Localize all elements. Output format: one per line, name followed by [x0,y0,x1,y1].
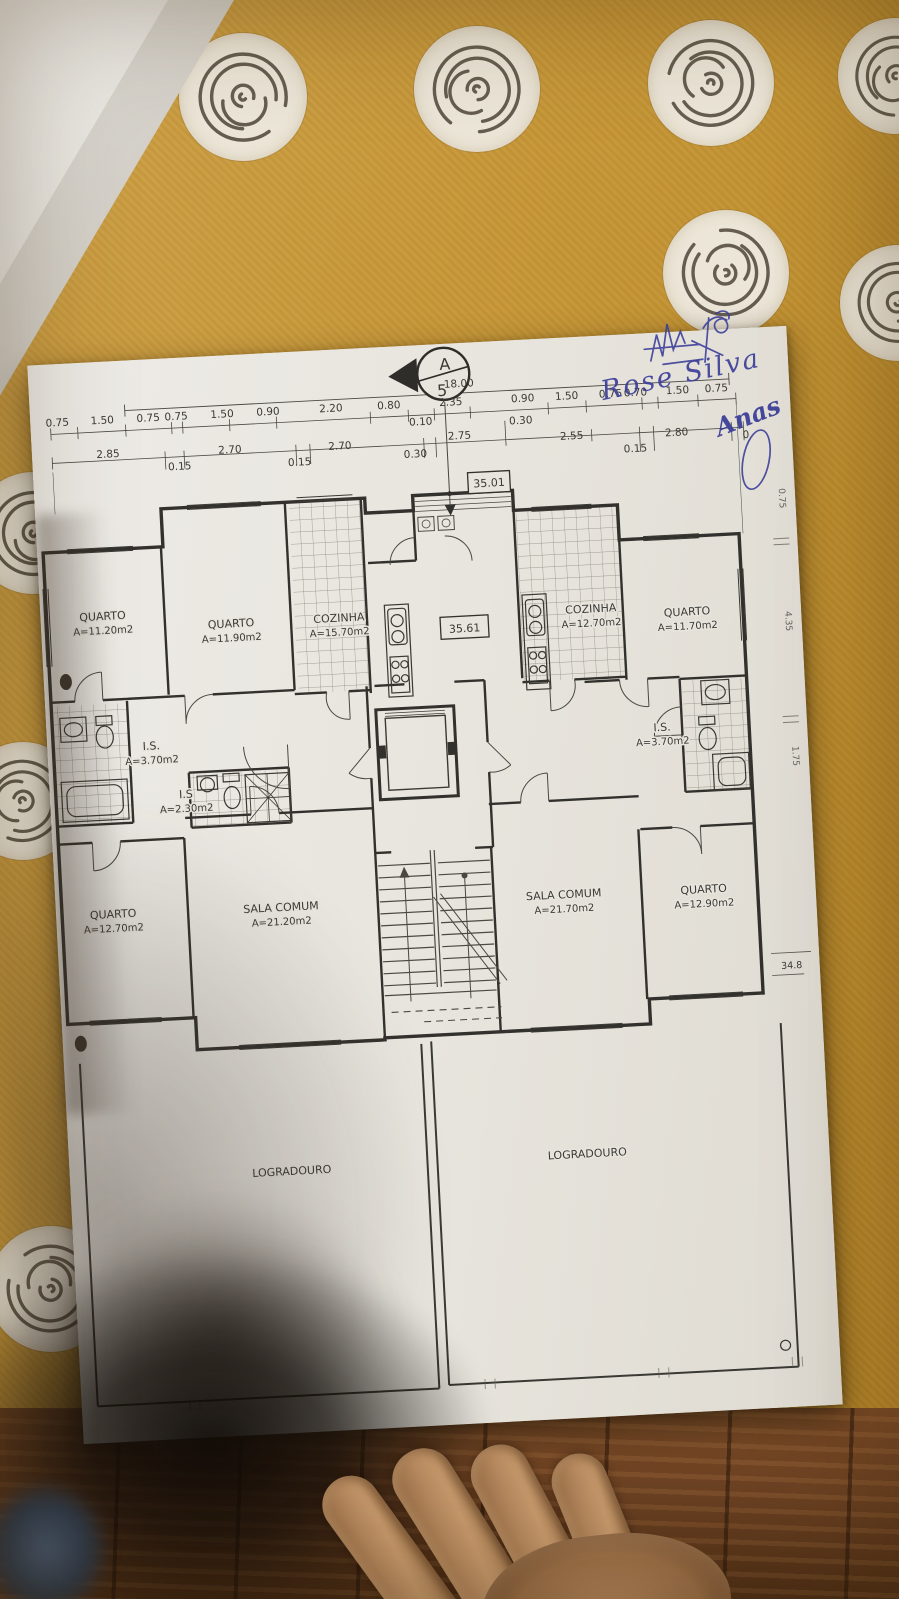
side-dimension-labels: 0.754.351.75 [776,488,801,766]
tablecloth-spiral-motif [840,245,899,361]
room-name: COZINHA [313,610,365,626]
dimension-label: 2.55 [560,430,584,443]
dimension-label: 0.75 [164,410,188,423]
dimension-label: 2.20 [319,402,343,415]
svg-text:35.01: 35.01 [473,476,505,491]
dimension-label: 2.35 [439,396,463,409]
room-name: QUARTO [208,616,255,631]
section-letter: A [439,354,451,374]
room-area: A=3.70m2 [636,735,690,749]
dimension-label: 0.75 [45,417,69,430]
tablecloth-spiral-motif [414,26,540,152]
blue-fabric-corner [0,1480,110,1599]
dimension-label: 2.75 [448,429,472,442]
hand [352,1420,752,1599]
section-marker: A 5 [387,347,471,403]
room-name: QUARTO [680,882,727,897]
side-dimension-label: 1.75 [789,746,800,767]
dimension-label: 0.10 [409,416,433,429]
photo-scene: A 5 18.00 35.01 35.61 34.8 [0,0,899,1599]
dimension-label: 0.30 [403,448,427,461]
room-name: I.S. [142,739,160,753]
side-dimension-label: 4.35 [782,611,793,632]
signature-handwriting: Rose Silva Anas [591,307,821,518]
room-name: SALA COMUM [526,886,602,903]
dimension-label: 1.50 [555,390,579,403]
yard-drain-mark [780,1340,791,1351]
boxed-label-3561: 35.61 [440,615,489,639]
signature-loop [726,420,790,503]
room-area: A=12.90m2 [674,897,734,911]
room-name: LOGRADOURO [547,1145,627,1162]
room-name: I.S. [653,720,671,734]
boxed-label-3501: 35.01 [467,471,510,494]
room-area: A=21.70m2 [534,903,594,917]
tablecloth-spiral-motif [648,20,774,146]
level-mark: 34.8 [771,951,812,975]
svg-text:34.8: 34.8 [781,960,803,972]
tablecloth-spiral-motif [838,18,899,134]
dimension-label: 2.85 [96,448,120,461]
dimension-label: 0.90 [511,392,535,405]
room-area: A=3.70m2 [125,754,179,768]
room-area: A=11.90m2 [202,632,262,646]
dimension-label: 0.30 [509,414,533,427]
dimension-label: 2.70 [218,444,242,457]
overall-dimension: 18.00 [443,377,474,391]
dimension-label: 0.90 [256,405,280,418]
dimension-label: 0.15 [168,460,192,473]
dimension-label: 0.15 [288,456,312,469]
svg-text:35.61: 35.61 [449,621,481,636]
room-name: QUARTO [664,604,711,619]
dimension-label: 0.75 [136,412,160,425]
dimension-label: 1.50 [90,414,114,427]
room-name: COZINHA [565,601,617,617]
room-area: A=11.70m2 [658,620,718,634]
dimension-label: 1.50 [210,408,234,421]
dimension-label: 0.80 [377,399,401,412]
dimension-label: 2.70 [328,440,352,453]
